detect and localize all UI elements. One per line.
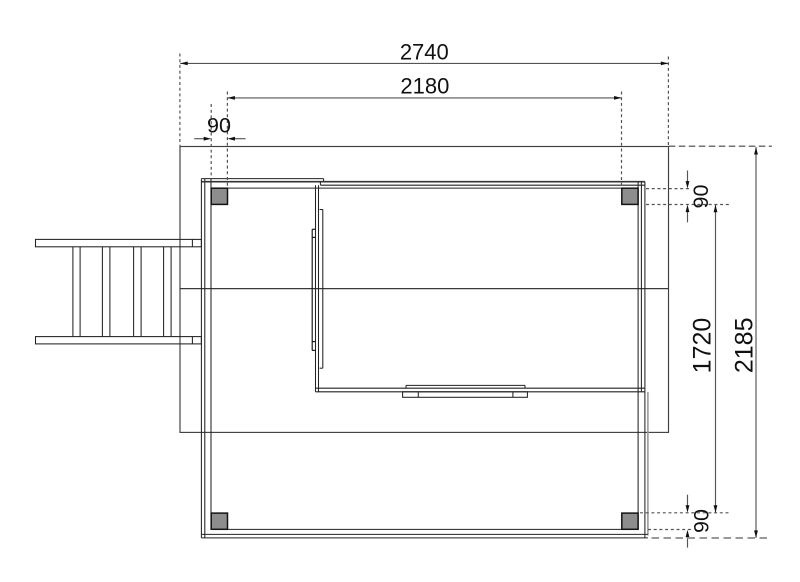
svg-text:2180: 2180 bbox=[400, 73, 449, 98]
svg-text:2185: 2185 bbox=[730, 317, 758, 373]
svg-text:90: 90 bbox=[690, 509, 714, 533]
svg-text:2740: 2740 bbox=[400, 40, 449, 65]
svg-text:90: 90 bbox=[689, 185, 713, 209]
svg-text:1720: 1720 bbox=[689, 318, 717, 374]
svg-text:90: 90 bbox=[207, 114, 231, 138]
